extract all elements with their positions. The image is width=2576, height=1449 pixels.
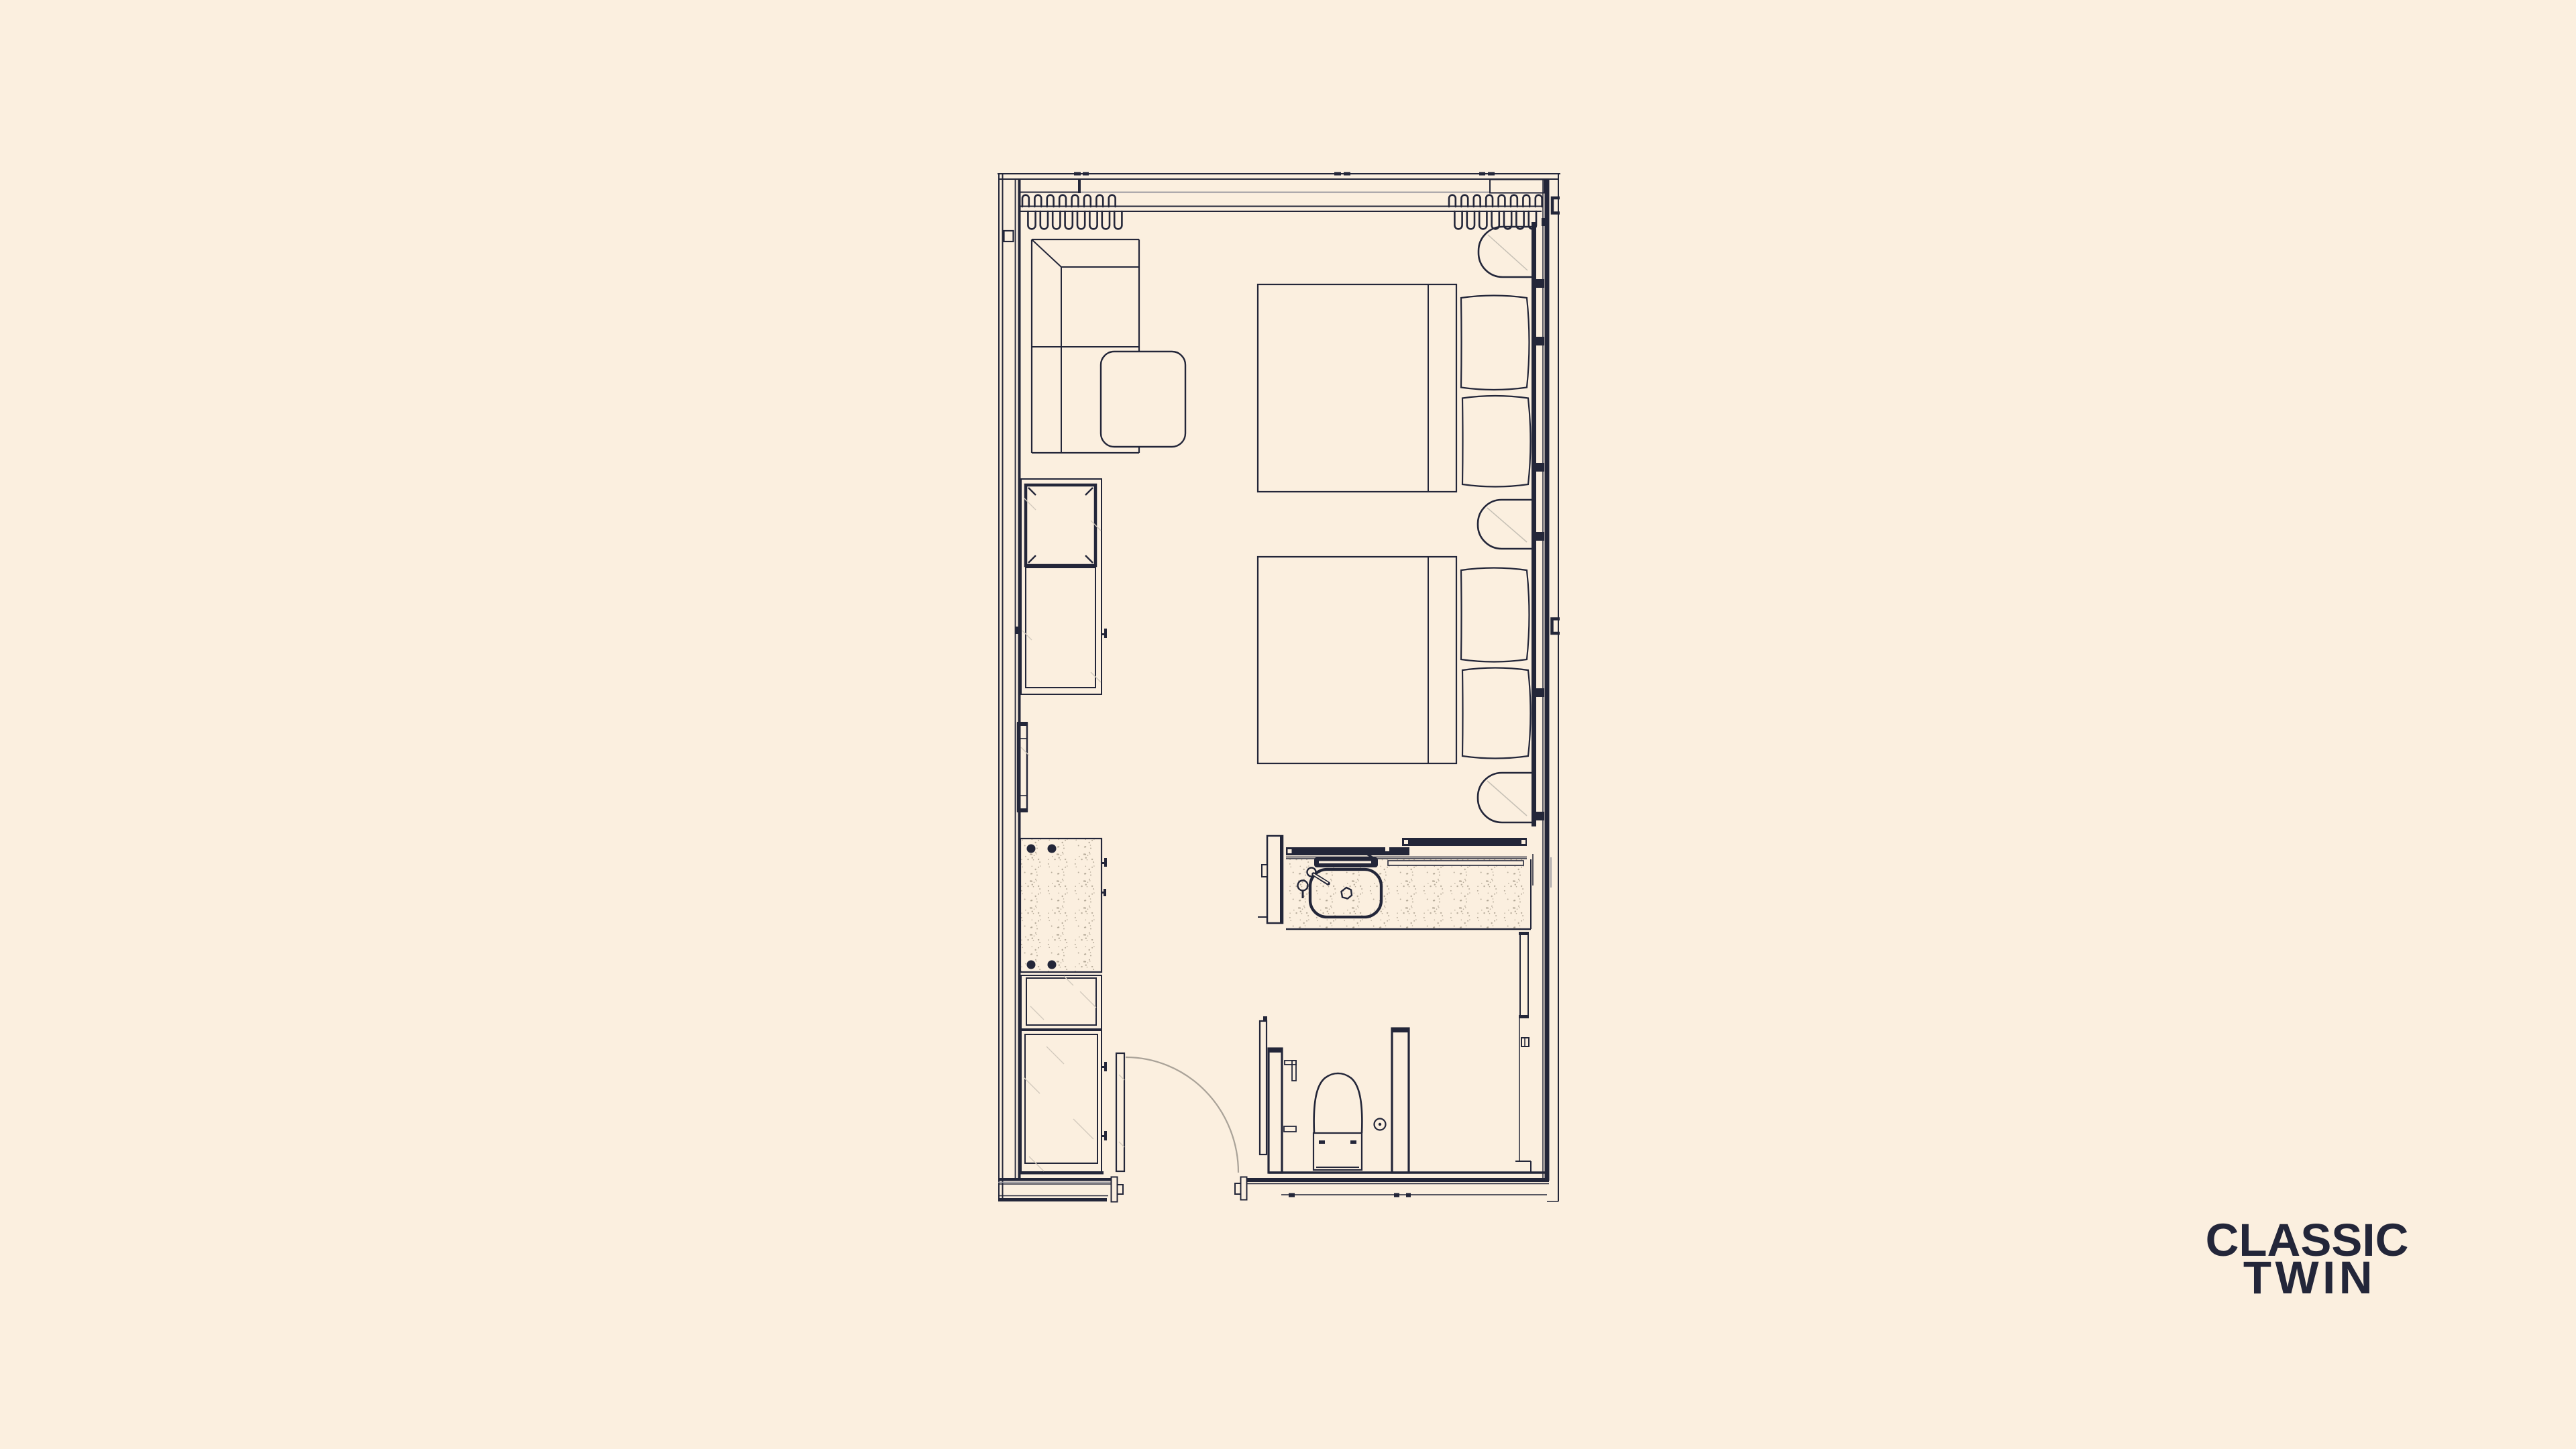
svg-text:TWIN: TWIN <box>2243 1252 2376 1303</box>
